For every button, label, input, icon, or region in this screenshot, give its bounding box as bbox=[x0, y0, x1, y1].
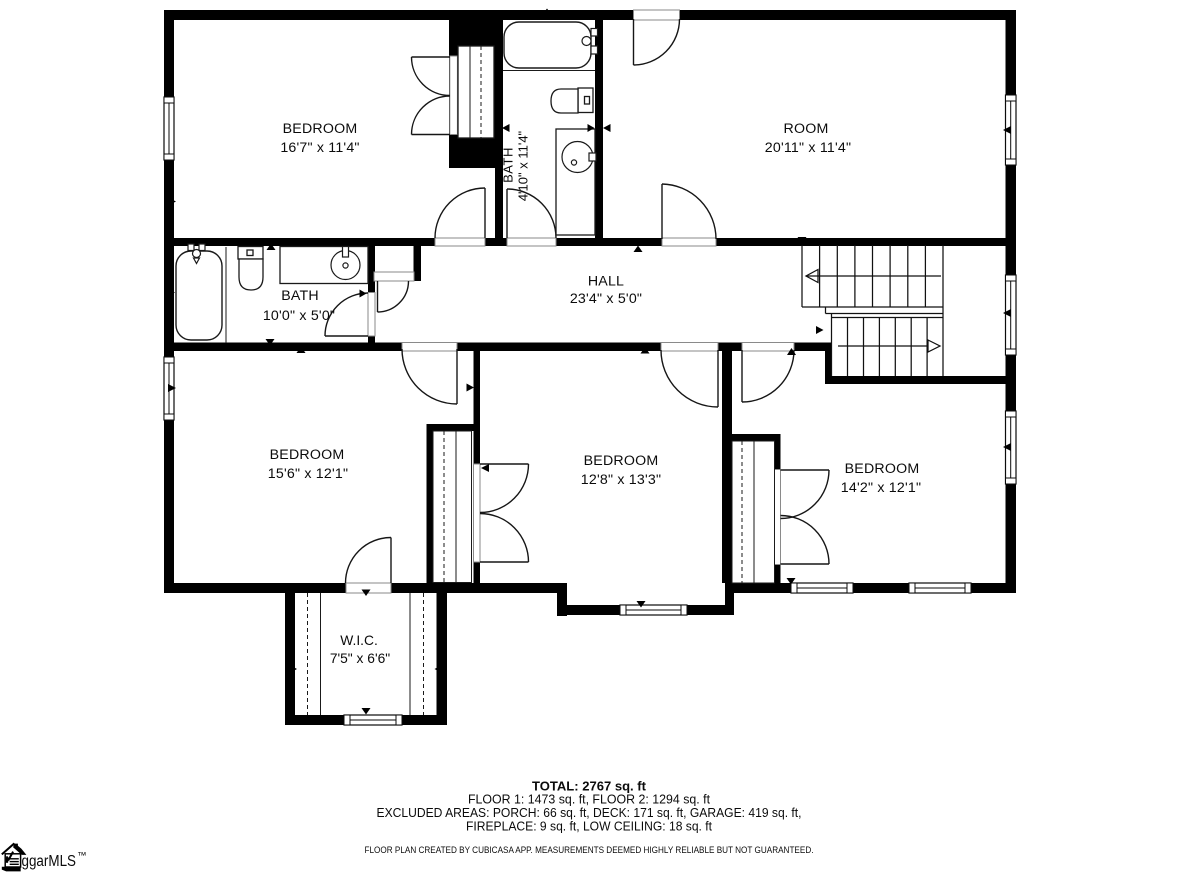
svg-text:™: ™ bbox=[77, 851, 87, 862]
svg-text:12'8" x 13'3": 12'8" x 13'3" bbox=[581, 472, 661, 488]
svg-text:BEDROOM: BEDROOM bbox=[270, 447, 345, 463]
svg-text:BEDROOM: BEDROOM bbox=[584, 453, 659, 469]
svg-text:W.I.C.: W.I.C. bbox=[340, 633, 378, 648]
svg-text:FIREPLACE: 9 sq. ft, LOW CEILI: FIREPLACE: 9 sq. ft, LOW CEILING: 18 sq.… bbox=[466, 820, 712, 834]
svg-text:ggarMLS: ggarMLS bbox=[22, 853, 77, 870]
svg-text:EXCLUDED AREAS: PORCH: 66 sq.: EXCLUDED AREAS: PORCH: 66 sq. ft, DECK: … bbox=[377, 806, 802, 820]
svg-text:20'11" x 11'4": 20'11" x 11'4" bbox=[765, 140, 851, 156]
svg-text:4'10" x 11'4": 4'10" x 11'4" bbox=[516, 130, 531, 201]
svg-text:10'0" x 5'0": 10'0" x 5'0" bbox=[263, 308, 335, 324]
svg-text:7'5" x 6'6": 7'5" x 6'6" bbox=[330, 651, 390, 666]
svg-text:23'4" x 5'0": 23'4" x 5'0" bbox=[570, 291, 642, 307]
svg-text:BATH: BATH bbox=[281, 288, 319, 304]
svg-text:14'2" x 12'1": 14'2" x 12'1" bbox=[841, 480, 921, 496]
svg-text:ROOM: ROOM bbox=[784, 121, 829, 137]
svg-text:FLOOR PLAN CREATED BY CUBICASA: FLOOR PLAN CREATED BY CUBICASA APP. MEAS… bbox=[365, 845, 814, 856]
svg-text:BATH: BATH bbox=[501, 147, 516, 183]
svg-text:BEDROOM: BEDROOM bbox=[283, 121, 358, 137]
svg-text:16'7" x 11'4": 16'7" x 11'4" bbox=[280, 140, 359, 156]
svg-text:HALL: HALL bbox=[588, 274, 624, 290]
svg-text:FLOOR 1: 1473 sq. ft, FLOOR 2:: FLOOR 1: 1473 sq. ft, FLOOR 2: 1294 sq. … bbox=[468, 793, 710, 807]
svg-text:BEDROOM: BEDROOM bbox=[845, 461, 920, 477]
svg-text:TOTAL: 2767 sq. ft: TOTAL: 2767 sq. ft bbox=[532, 779, 647, 794]
svg-text:15'6" x 12'1": 15'6" x 12'1" bbox=[268, 466, 348, 482]
